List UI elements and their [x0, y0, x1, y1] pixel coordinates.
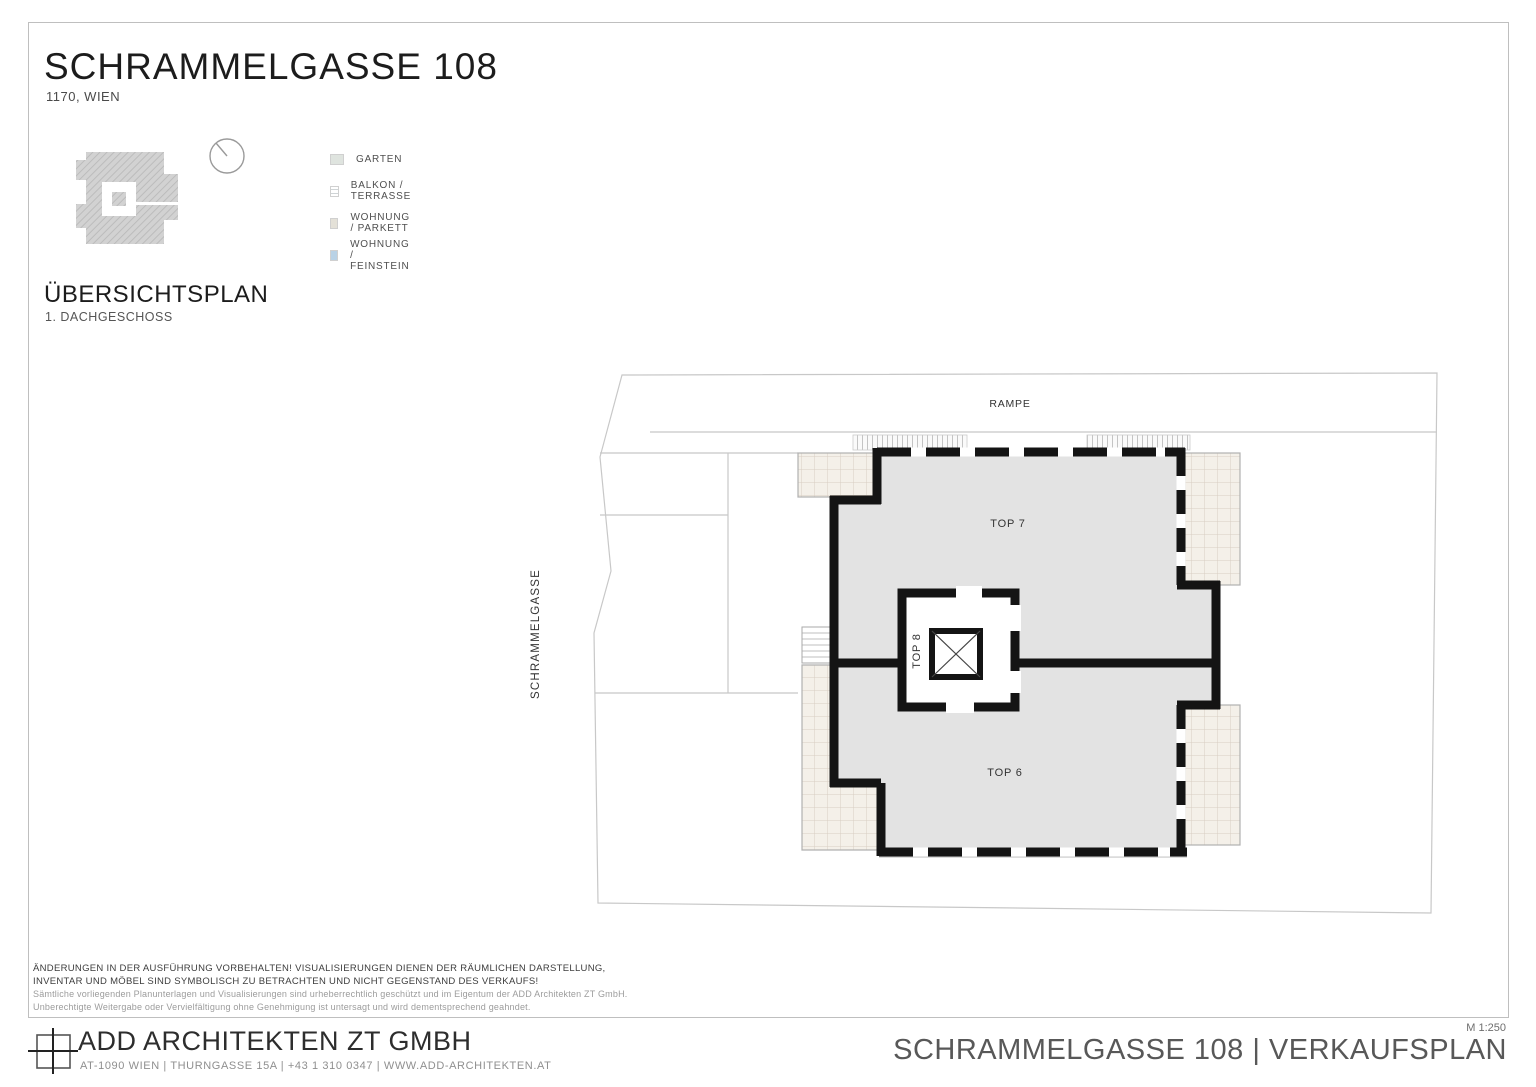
overview-mini-plan [72, 144, 192, 256]
legend-label: WOHNUNG / PARKETT [350, 212, 415, 234]
plan-scale: M 1:250 [1466, 1022, 1506, 1034]
legend-item-wohnung-parkett: WOHNUNG / PARKETT [330, 216, 415, 230]
terrace-right-upper [1185, 453, 1240, 585]
legend-swatch-wohnung-feinstein [330, 250, 338, 261]
legend-label: WOHNUNG / FEINSTEIN [350, 239, 415, 272]
disclaimer-line-2: INVENTAR UND MÖBEL SIND SYMBOLISCH ZU BE… [33, 975, 627, 988]
company-logo-icon [28, 1028, 80, 1076]
disclaimer-line-1: ÄNDERUNGEN IN DER AUSFÜHRUNG VORBEHALTEN… [33, 962, 627, 975]
terrace-top-left [798, 453, 876, 497]
legend-item-garten: GARTEN [330, 152, 402, 166]
apartment-top6-area [834, 663, 1216, 852]
disclaimer-line-3: Sämtliche vorliegenden Planunterlagen un… [33, 988, 627, 1001]
legend-label: GARTEN [356, 154, 402, 165]
terrace-bottom-right [1185, 705, 1240, 845]
legend-swatch-wohnung-parkett [330, 218, 338, 229]
unit-label-top8: TOP 8 [911, 633, 923, 668]
floor-plan-drawing: RAMPE TOP 7 TOP 8 TOP 6 [580, 365, 1460, 925]
elevator [932, 631, 980, 677]
page-title: SCHRAMMELGASSE 108 [44, 46, 498, 88]
overview-heading: ÜBERSICHTSPLAN [44, 281, 268, 309]
footer-company-name: ADD ARCHITEKTEN ZT GMBH [78, 1026, 472, 1057]
page-subtitle: 1170, WIEN [46, 89, 120, 104]
unit-label-top6: TOP 6 [987, 767, 1022, 779]
legend-swatch-balkon-terrasse [330, 186, 339, 197]
footer-plan-title: SCHRAMMELGASSE 108 | VERKAUFSPLAN [893, 1034, 1507, 1067]
footer-company-address: AT-1090 WIEN | THURNGASSE 15A | +43 1 31… [80, 1060, 551, 1072]
legend-swatch-garten [330, 154, 344, 165]
ramp-label: RAMPE [989, 398, 1030, 410]
disclaimer: ÄNDERUNGEN IN DER AUSFÜHRUNG VORBEHALTEN… [33, 962, 627, 1014]
exterior-stairs [802, 627, 834, 663]
disclaimer-line-4: Unberechtigte Weitergabe oder Vervielfäl… [33, 1001, 627, 1014]
apartment-areas [834, 452, 1216, 852]
legend-item-wohnung-feinstein: WOHNUNG / FEINSTEIN [330, 248, 415, 262]
overview-footprint [76, 152, 180, 244]
legend-item-balkon-terrasse: BALKON / TERRASSE [330, 184, 416, 198]
legend-label: BALKON / TERRASSE [351, 180, 417, 202]
apartment-top7-area [834, 452, 1216, 663]
overview-subheading: 1. DACHGESCHOSS [45, 310, 173, 324]
north-arrow-icon [205, 136, 249, 180]
unit-label-top7: TOP 7 [990, 518, 1025, 530]
street-label: SCHRAMMELGASSE [530, 561, 542, 707]
